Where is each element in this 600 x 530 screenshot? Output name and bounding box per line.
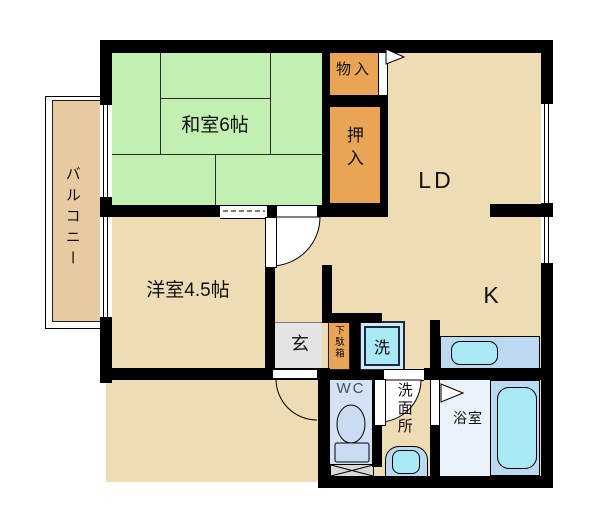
washing-machine-pan: 洗 [359, 321, 405, 371]
wall-shoe-stub [350, 323, 360, 370]
door-opening-storage [378, 53, 388, 95]
wall-washroom-seg [424, 368, 440, 380]
tatami-line [160, 53, 161, 155]
door-opening-washroom [384, 369, 424, 381]
youshitsu-label: 洋室4.5帖 [108, 281, 268, 301]
tatami-line [160, 98, 270, 99]
door-opening-bathroom [431, 380, 439, 425]
wall-hall-L-horiz [322, 313, 382, 323]
bathroom-label: 浴室 [442, 411, 494, 426]
washbasin [392, 450, 420, 474]
storage-label: 物入 [329, 62, 379, 78]
wall-kitchen-bath [440, 368, 553, 380]
laundry-label: 洗 [374, 334, 390, 358]
window-washitsu-balcony [100, 105, 112, 197]
tatami-line [112, 154, 322, 155]
wall-oshiire-right [380, 107, 388, 203]
oshiire-label: 押入 [344, 126, 362, 172]
window-youshitsu-balcony [100, 217, 112, 317]
wall-wc-left [318, 368, 330, 488]
washing-machine: 洗 [364, 326, 400, 366]
washroom-label: 洗面所 [396, 382, 412, 436]
washitsu-label: 和室6帖 [135, 116, 295, 136]
wall-hall-L-vert [322, 265, 332, 315]
kitchen-sink [451, 341, 498, 365]
bathroom-floor [440, 380, 492, 476]
kitchen-label: K [463, 283, 519, 307]
wall-below-oshiire [322, 203, 388, 217]
wall-seg [317, 205, 330, 217]
bathtub [497, 387, 537, 469]
tatami-line [270, 53, 271, 155]
wall-washitsu-bottom [100, 205, 220, 217]
window-kitchen-right [541, 217, 553, 263]
floor-plan: 洗 [0, 0, 600, 530]
genkan-label: 玄 [282, 335, 318, 354]
ld-label: LD [405, 168, 467, 192]
door-leaf-washitsu [265, 217, 277, 268]
shoe-cabinet-label: 下駄箱 [333, 325, 343, 360]
wall-storage-divider [330, 95, 388, 107]
tatami-line [215, 155, 216, 205]
sliding-door-washitsu [220, 205, 267, 219]
window-ld-right [541, 104, 553, 203]
wall-ldk-stub [490, 204, 547, 217]
door-opening-hall [277, 205, 317, 219]
entrance-door [272, 369, 318, 379]
balcony-label: バルコニー [64, 166, 80, 271]
wc-label: WC [330, 381, 372, 397]
wall-seg [267, 205, 277, 217]
door-leaf-washroom [374, 379, 386, 426]
